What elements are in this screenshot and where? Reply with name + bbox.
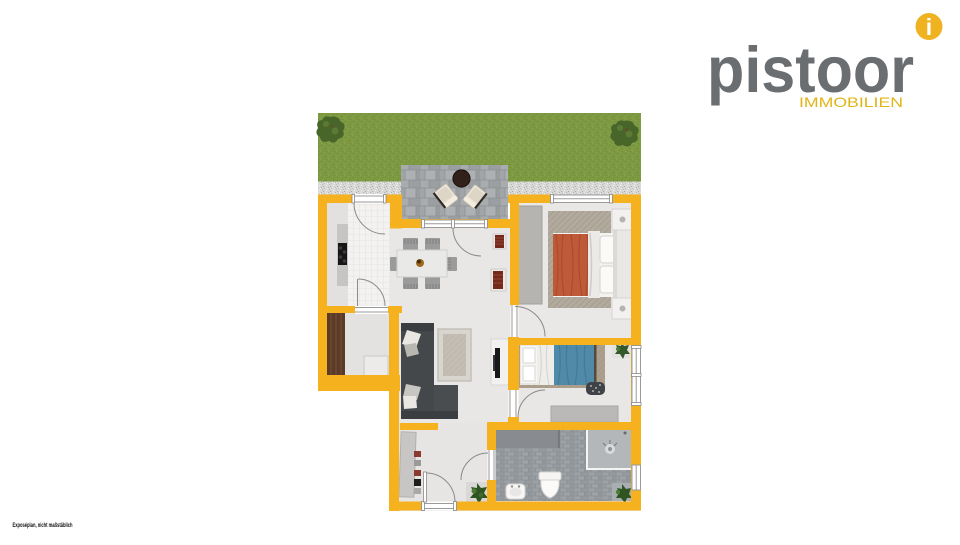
svg-text:Exposéplan, nicht maßstäblich: Exposéplan, nicht maßstäblich — [13, 522, 73, 529]
svg-text:i: i — [926, 14, 932, 40]
svg-text:IMMOBILIEN: IMMOBILIEN — [799, 94, 903, 110]
